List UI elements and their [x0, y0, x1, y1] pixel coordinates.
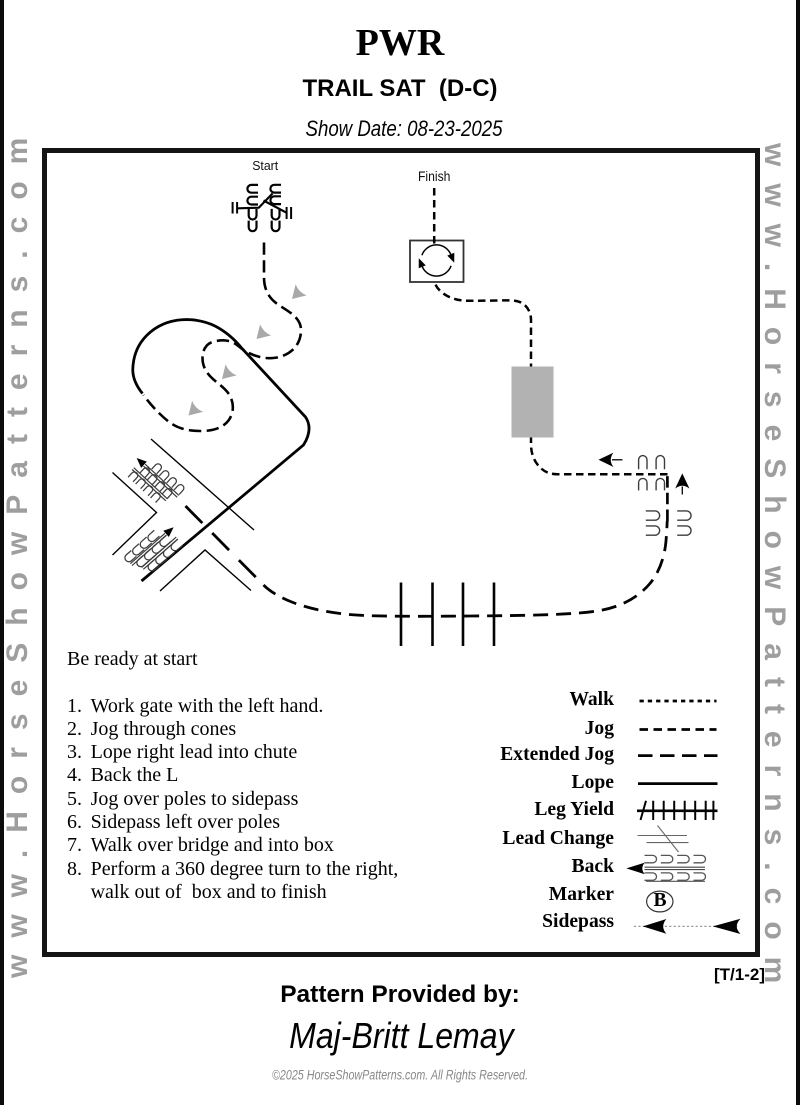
svg-text:Finish: Finish [418, 169, 451, 184]
svg-text:Maj-Britt Lemay: Maj-Britt Lemay [289, 1015, 516, 1056]
svg-text:Start: Start [252, 158, 278, 173]
svg-text:Show Date: 08-23-2025: Show Date: 08-23-2025 [306, 116, 503, 141]
svg-text:©2025 HorseShowPatterns.com. A: ©2025 HorseShowPatterns.com. All Rights … [272, 1067, 528, 1082]
